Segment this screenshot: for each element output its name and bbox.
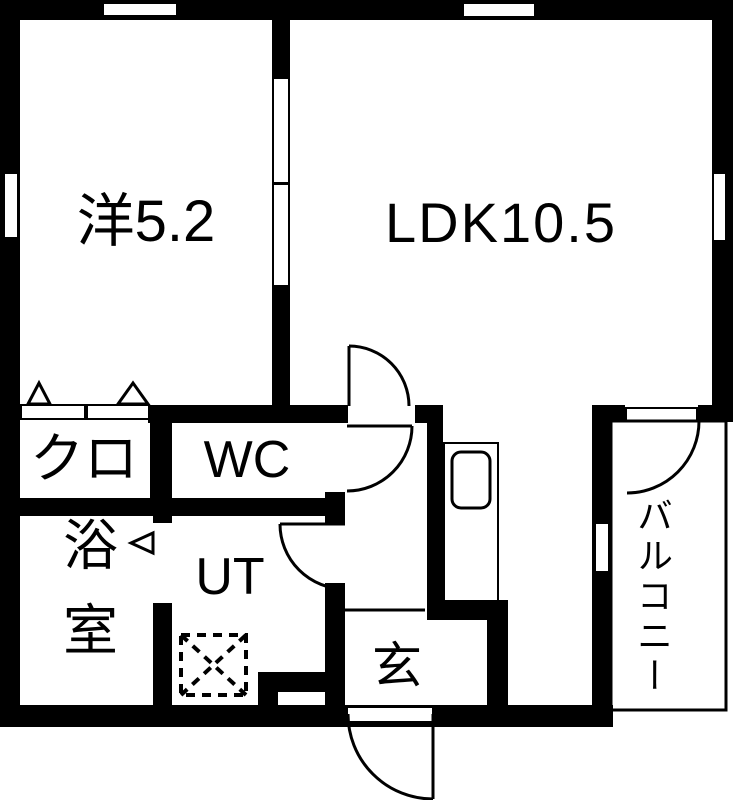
kitchen-counter (443, 442, 499, 602)
room-label-ldk: LDK10.5 (385, 195, 617, 251)
room-label-balcony: バルコニー (634, 497, 670, 697)
wall-genkan-right (487, 618, 508, 707)
bath-door-triangle-icon (131, 533, 153, 553)
room-label-utility: UT (195, 551, 264, 603)
washer-pan-cross-icon (181, 635, 246, 695)
wall-kitchen-back (427, 405, 443, 620)
balcony-door-arc-icon (627, 421, 699, 493)
room-label-closet: クロ (30, 432, 138, 486)
wall-ut-stub (258, 672, 325, 692)
room-label-western: 洋5.2 (77, 193, 216, 251)
wall-under-closet-wc (0, 498, 345, 516)
wall-bath-ut-lower (153, 603, 172, 707)
wall-bottom (0, 705, 613, 727)
wall-closet-wc-divider (150, 405, 172, 498)
ut-door-arc-icon (280, 524, 345, 589)
wall-hall-top-left (148, 405, 348, 423)
wall-corridor-left-lower (325, 583, 345, 705)
closet-fold-triangle-icon (28, 383, 50, 404)
entrance-door-opening (346, 706, 434, 723)
sliding-door-divider (274, 182, 288, 185)
floor-plan: 洋5.2 LDK10.5 クロ WC 浴室 UT 玄 バルコニー (0, 0, 733, 800)
window-top-ldk (462, 2, 536, 18)
window-balcony-wall (594, 522, 610, 573)
wc-door-arc-icon (347, 426, 412, 491)
closet-fold-triangle-icon (118, 383, 148, 404)
window-left (3, 172, 19, 239)
balcony-door-threshold (625, 407, 698, 422)
closet-door-panel-1 (20, 404, 86, 420)
wall-corridor-left-mid (325, 492, 345, 525)
wall-bath-ut-upper (153, 516, 172, 523)
wall-genkan-bar (427, 600, 508, 620)
sliding-door-western-ldk (272, 77, 290, 287)
washer-pan-icon (181, 635, 246, 695)
wall-balcony-top-right (698, 405, 733, 422)
ldk-door-arc-icon (349, 346, 409, 406)
closet-door-panel-2 (86, 404, 150, 420)
window-top-west (102, 2, 178, 17)
wall-balcony-top-left (592, 405, 625, 422)
room-label-bath: 浴室 (58, 516, 113, 686)
room-label-wc: WC (204, 434, 291, 486)
window-right (712, 172, 727, 242)
room-label-entrance: 玄 (372, 641, 422, 691)
wall-ut-stub-leg (258, 692, 278, 707)
wall-left (0, 0, 20, 727)
